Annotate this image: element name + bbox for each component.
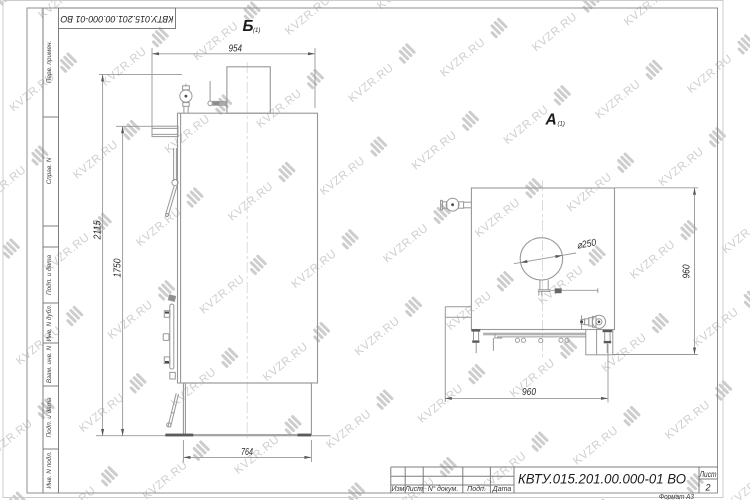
svg-text:Взам. инв. N: Взам. инв. N: [46, 346, 53, 384]
svg-text:Дата: Дата: [492, 486, 512, 493]
svg-text:Справ. N: Справ. N: [46, 157, 53, 184]
svg-text:Формат А3: Формат А3: [659, 492, 695, 500]
svg-text:Лист: Лист: [699, 470, 717, 479]
svg-text:N° докум.: N° докум.: [428, 485, 459, 493]
svg-text:А: А: [545, 112, 557, 129]
svg-text:Подп. и дата: Подп. и дата: [45, 255, 53, 295]
svg-text:Изм: Изм: [392, 486, 405, 493]
svg-text:960: 960: [682, 264, 693, 278]
svg-text:Перв. примен.: Перв. примен.: [46, 41, 53, 83]
svg-text:Б: Б: [243, 18, 254, 35]
svg-text:2115: 2115: [93, 220, 104, 240]
svg-text:764: 764: [241, 447, 253, 458]
svg-text:954: 954: [229, 43, 243, 54]
svg-text:КВТУ.015.201.00.000-01 ВО: КВТУ.015.201.00.000-01 ВО: [518, 471, 686, 487]
svg-text:960: 960: [522, 387, 536, 398]
svg-text:КВТУ.015.201.00.000-01 ВО: КВТУ.015.201.00.000-01 ВО: [61, 14, 174, 24]
svg-text:Лист: Лист: [404, 486, 423, 493]
svg-text:Подп. и дата: Подп. и дата: [45, 397, 53, 437]
svg-text:Подп.: Подп.: [467, 485, 486, 493]
svg-text:1750: 1750: [113, 258, 124, 277]
svg-text:(1): (1): [253, 28, 260, 34]
svg-text:(1): (1): [558, 122, 565, 128]
svg-text:2: 2: [704, 483, 710, 493]
svg-text:Инв. N подл.: Инв. N подл.: [45, 451, 53, 488]
svg-text:Инв. N дубл.: Инв. N дубл.: [45, 305, 53, 342]
